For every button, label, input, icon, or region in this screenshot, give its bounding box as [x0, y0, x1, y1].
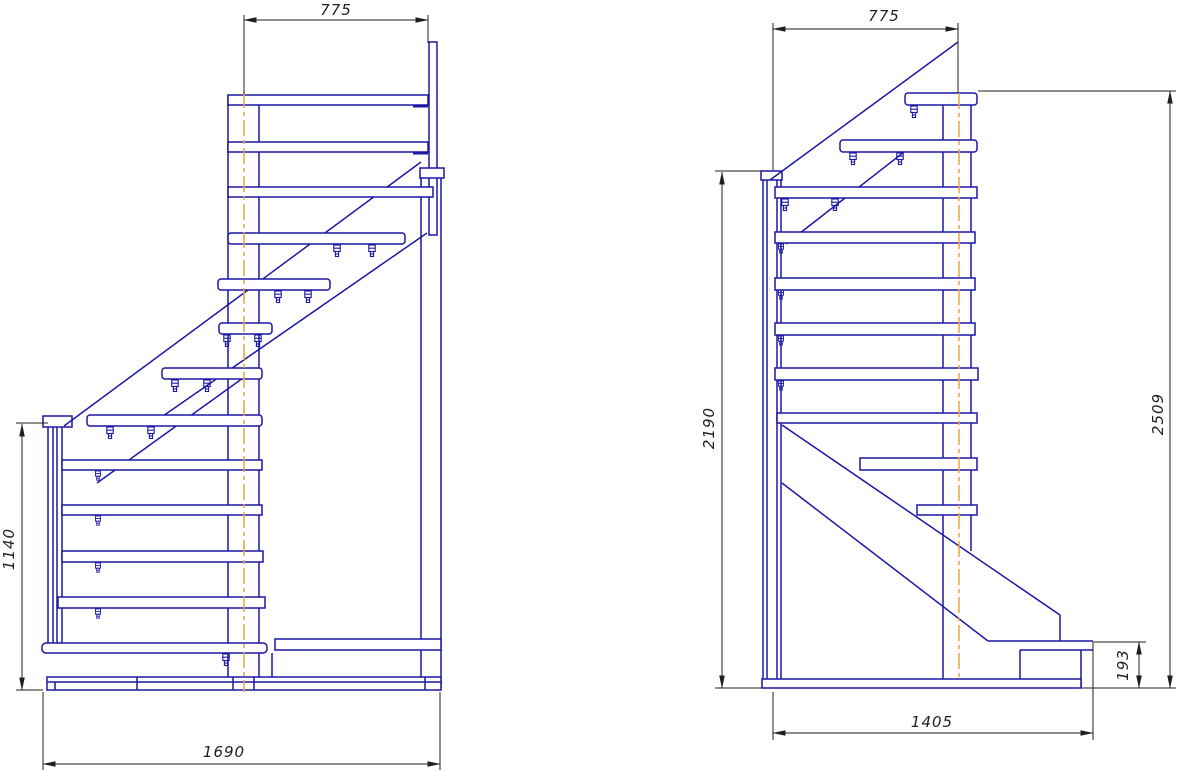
- bolt-icon: [334, 245, 340, 257]
- tread: [62, 505, 262, 515]
- right-view: 775 2190 2509 193 1405: [700, 7, 1176, 740]
- bolt-icon: [850, 153, 856, 165]
- bolt-icon: [305, 291, 311, 303]
- bottom-rail: [275, 639, 441, 650]
- bolt-icon: [107, 427, 113, 439]
- tread: [58, 597, 265, 608]
- bolt-icon: [369, 245, 375, 257]
- bolt-icon: [172, 380, 178, 392]
- bolt-icon: [275, 291, 281, 303]
- tread: [62, 460, 262, 470]
- stringer-line: [64, 162, 421, 426]
- bolt-icon: [95, 609, 100, 618]
- stringer-line: [150, 233, 427, 425]
- tread: [777, 413, 977, 423]
- upper-rail-post: [429, 42, 437, 235]
- dim-label-top-width: 775: [320, 1, 352, 19]
- dim-label-top-width: 775: [868, 7, 900, 25]
- tread: [775, 232, 975, 243]
- right-view-structure: [761, 42, 1093, 688]
- bolt-icon: [95, 563, 100, 572]
- tread: [162, 368, 262, 379]
- tread: [917, 505, 977, 515]
- bolt-icon: [148, 427, 154, 439]
- frame-bracket: [420, 168, 444, 178]
- tread: [228, 233, 405, 244]
- tread: [840, 140, 977, 152]
- dim-label-outer-height: 2509: [1149, 393, 1167, 435]
- tread: [775, 368, 978, 380]
- tread: [775, 323, 975, 335]
- stringer-line: [770, 42, 958, 180]
- stringer-top-edge: [782, 425, 1060, 615]
- bolt-icon: [255, 335, 261, 347]
- tread: [228, 95, 428, 105]
- base-beam: [762, 679, 1081, 688]
- tread: [87, 415, 262, 426]
- tread: [62, 551, 263, 562]
- staircase-blueprint: 775 1140 1690: [0, 0, 1178, 771]
- bottom-tread: [42, 643, 267, 653]
- dim-label-step-height: 193: [1114, 649, 1132, 681]
- dim-label-inner-height: 2190: [700, 407, 718, 449]
- left-post-cap: [43, 416, 72, 427]
- dim-label-left-height: 1140: [0, 528, 18, 570]
- dim-label-bottom-width: 1690: [203, 743, 245, 761]
- tread: [228, 142, 428, 152]
- dim-label-bottom-width: 1405: [911, 713, 953, 731]
- tread: [219, 323, 272, 334]
- left-view-structure: [42, 42, 444, 690]
- bolt-icon: [95, 471, 100, 480]
- tread: [218, 279, 330, 290]
- tread: [905, 93, 977, 105]
- bolt-icon: [224, 335, 230, 347]
- tread: [775, 187, 977, 198]
- bolt-icon: [782, 199, 788, 211]
- left-view-dimensions: 775 1140 1690: [0, 1, 440, 770]
- tread: [228, 187, 433, 197]
- bolt-icon: [95, 516, 100, 525]
- tread: [775, 278, 975, 290]
- drawing-canvas: 775 1140 1690: [0, 0, 1178, 771]
- left-view: 775 1140 1690: [0, 1, 444, 770]
- bolt-icon: [911, 106, 917, 118]
